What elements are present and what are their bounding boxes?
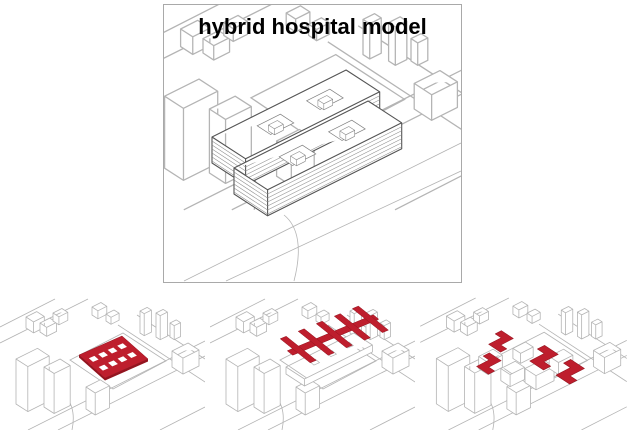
support-volumes	[479, 342, 573, 390]
red-pinwheel-diagram	[420, 296, 627, 430]
red-comb-diagram	[210, 297, 415, 430]
podium-drawing	[286, 333, 372, 386]
massing-diagram-comb	[210, 297, 415, 430]
massing-diagram-slab	[0, 297, 205, 430]
red-slab-diagram	[0, 297, 205, 430]
diagram-title: hybrid hospital model	[164, 14, 461, 40]
main-panel: hybrid hospital model	[163, 4, 462, 283]
hybrid-hospital-axonometric-drawing	[164, 5, 461, 282]
figure-canvas: hybrid hospital model	[0, 0, 627, 430]
massing-diagram-hybrid	[420, 296, 627, 430]
